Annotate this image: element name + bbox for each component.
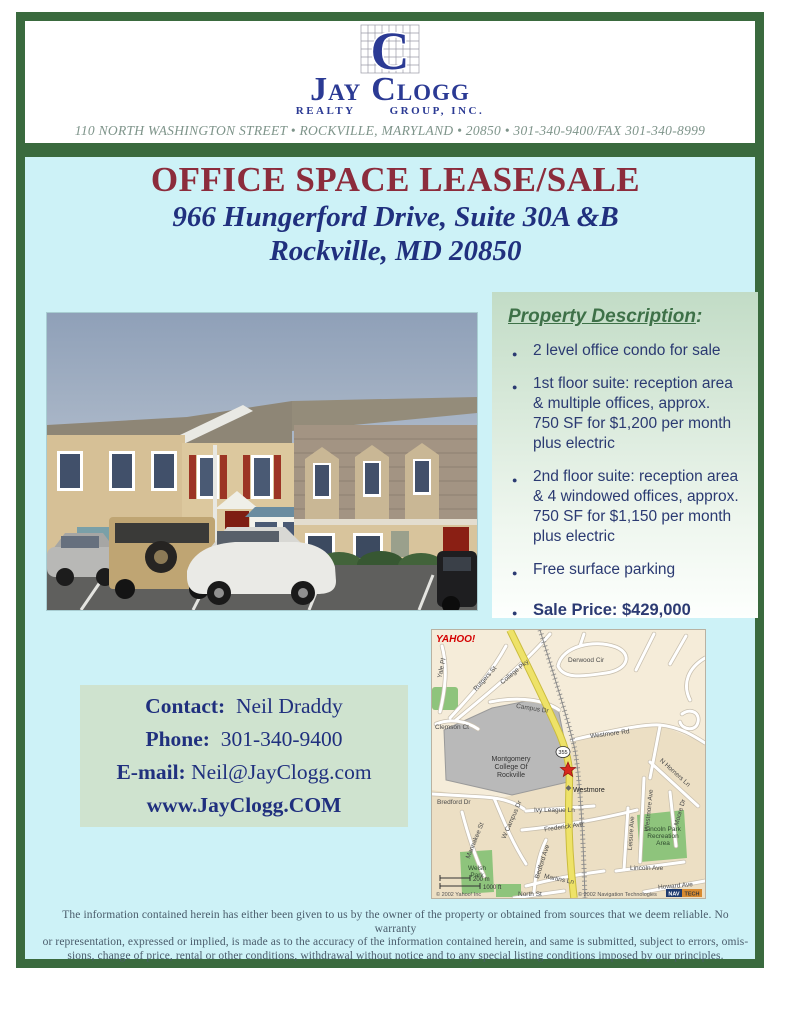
svg-text:TECH: TECH: [685, 892, 700, 898]
logo-sub-left: REALTY: [296, 105, 356, 117]
svg-text:North St: North St: [518, 891, 542, 898]
contact-row: E-mail: Neil@JayClogg.com: [80, 756, 408, 789]
property-address-line1: 966 Hungerford Drive, Suite 30A &B: [33, 200, 758, 234]
logo-name-part: C: [371, 71, 397, 109]
contact-value: Neil Draddy: [236, 694, 343, 718]
svg-text:355: 355: [558, 750, 567, 756]
logo-grid-monogram-icon: C: [352, 23, 428, 77]
contact-row: Contact: Neil Draddy: [80, 690, 408, 723]
svg-text:Lincoln Park: Lincoln Park: [645, 826, 682, 833]
svg-text:Derwood Cir: Derwood Cir: [568, 657, 605, 664]
page-title: OFFICE SPACE LEASE/SALE: [33, 160, 758, 200]
logo-name-part: LOGG: [397, 80, 470, 106]
copyright-navtech: © 2002 Navigation Technologies: [578, 891, 657, 898]
svg-text:Clemson Ct: Clemson Ct: [435, 724, 469, 731]
header: C JAY CLOGG REALTY GROUP, INC. 110 NORTH…: [25, 21, 755, 143]
logo-monogram: C: [371, 23, 410, 77]
car-dark: [437, 551, 477, 610]
yahoo-map-illustration: 355 Yale Pl Rutgers St College Pky Derwo…: [432, 630, 705, 898]
panel-heading-colon: :: [696, 306, 702, 327]
property-bullet-list: 2 level office condo for sale 1st floor …: [508, 341, 748, 620]
location-map: 355 Yale Pl Rutgers St College Pky Derwo…: [432, 630, 705, 898]
logo-subtitle: REALTY GROUP, INC.: [296, 105, 484, 117]
sale-price-bullet: Sale Price: $429,000: [508, 600, 740, 620]
townhouse-photo-illustration: [47, 313, 477, 610]
sill-band: [294, 519, 477, 525]
disclaimer-line: or representation, expressed or implied,…: [40, 936, 751, 950]
website-link[interactable]: www.JayClogg.COM: [80, 789, 408, 822]
svg-text:NAV: NAV: [668, 892, 680, 898]
svg-text:Rockville: Rockville: [497, 772, 525, 779]
email-label: E-mail:: [116, 760, 185, 784]
dormer-windows: [305, 443, 439, 519]
svg-text:Welsh: Welsh: [468, 865, 486, 872]
property-description-panel: Property Description: 2 level office con…: [492, 292, 758, 618]
logo-name: JAY CLOGG: [310, 71, 470, 109]
yahoo-logo: YAHOO!: [436, 634, 476, 645]
panel-heading-text: Property Description: [508, 306, 696, 327]
svg-text:Area: Area: [656, 840, 670, 847]
svg-text:200 m: 200 m: [473, 877, 490, 883]
route-shield-icon: 355: [556, 747, 570, 758]
bullet-item: 2 level office condo for sale: [508, 341, 740, 361]
contact-row: Phone: 301-340-9400: [80, 723, 408, 756]
phone-label: Phone:: [145, 727, 210, 751]
contact-box: Contact: Neil Draddy Phone: 301-340-9400…: [80, 685, 408, 827]
svg-text:Recreation: Recreation: [647, 833, 679, 840]
bullet-item: Free surface parking: [508, 560, 740, 580]
logo-name-part: J: [310, 71, 328, 109]
contact-label: Contact:: [145, 694, 225, 718]
office-address-line: 110 NORTH WASHINGTON STREET • ROCKVILLE,…: [25, 123, 755, 139]
svg-text:Bredford Dr: Bredford Dr: [437, 799, 471, 806]
svg-text:Ivy League Ln: Ivy League Ln: [534, 807, 575, 814]
property-photo: [47, 313, 477, 610]
disclaimer: The information contained herein has eit…: [40, 909, 751, 963]
svg-text:1000 ft: 1000 ft: [483, 885, 502, 891]
navtech-logo: NAV TECH: [666, 889, 702, 898]
email-value[interactable]: Neil@JayClogg.com: [191, 760, 371, 784]
bullet-item: 2nd floor suite: reception area & 4 wind…: [508, 467, 740, 547]
svg-text:College Of: College Of: [494, 764, 527, 771]
bullet-item: 1st floor suite: reception area & multip…: [508, 374, 740, 454]
svg-text:Westmore: Westmore: [573, 787, 605, 794]
copyright-yahoo: © 2002 Yahoo! Inc: [436, 891, 481, 898]
logo-sub-right: GROUP, INC.: [390, 105, 485, 117]
hero-titles: OFFICE SPACE LEASE/SALE 966 Hungerford D…: [33, 160, 758, 268]
signboard: [391, 531, 409, 557]
panel-heading: Property Description:: [508, 306, 748, 328]
svg-text:Lincoln Ave: Lincoln Ave: [630, 865, 664, 872]
property-address-line2: Rockville, MD 20850: [33, 234, 758, 268]
disclaimer-line: The information contained herein has eit…: [40, 909, 751, 936]
disclaimer-line: sions, change of price, rental or other …: [40, 950, 751, 964]
svg-text:Montgomery: Montgomery: [492, 756, 531, 763]
company-logo: C JAY CLOGG REALTY GROUP, INC.: [25, 23, 755, 117]
flyer-page: C JAY CLOGG REALTY GROUP, INC. 110 NORTH…: [0, 0, 791, 1024]
logo-name-part: AY: [328, 80, 361, 106]
left-windows: [57, 451, 177, 491]
phone-value: 301-340-9400: [221, 727, 343, 751]
